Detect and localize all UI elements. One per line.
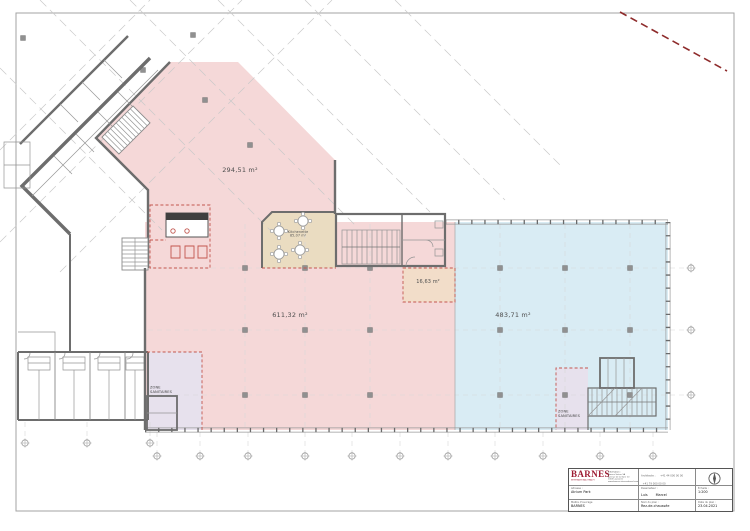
drawing-sheet: 294,51 m² 611,32 m² 483,71 m² 16,63 m² K… bbox=[0, 0, 750, 531]
area-label-small-room: 16,63 m² bbox=[401, 279, 455, 285]
north-arrow-icon bbox=[707, 471, 722, 486]
title-block-date-cell: Date du plan : 23.04.2021 bbox=[696, 500, 732, 511]
title-block-north-cell bbox=[696, 469, 732, 486]
sanitaires-left-line2: SANITAIRES bbox=[150, 390, 195, 394]
lower-left-wing bbox=[18, 352, 148, 420]
title-block-draftsman-cell: Dessinateur : Luis Marcel bbox=[639, 486, 696, 500]
kitchenette-area: 85,07 m² bbox=[271, 234, 325, 238]
draftsman-name1: Luis bbox=[641, 493, 648, 497]
wing-stair2-icon bbox=[122, 238, 148, 270]
owner-value: BARNES bbox=[571, 504, 636, 508]
title-block-owner-cell: Maître d'ouvrage BARNES bbox=[569, 500, 639, 511]
boundary-red-dashed-line bbox=[620, 12, 727, 71]
sanitaires-left-label: ZONE SANITAIRES bbox=[150, 386, 195, 394]
title-block-scale-cell: Échelle : 1:200 bbox=[696, 486, 732, 500]
title-block: BARNES INTERNATIONAL REALTY Information … bbox=[568, 468, 733, 512]
plan-name-value: Rez-de-chaussée bbox=[641, 504, 693, 508]
date-value: 23.04.2021 bbox=[698, 504, 730, 508]
title-block-logo-cell: BARNES INTERNATIONAL REALTY Information … bbox=[569, 469, 639, 486]
info-line: www.barnes-international.com bbox=[608, 480, 639, 482]
sanitaires-right-label: ZONE SANITAIRES bbox=[558, 410, 603, 418]
kitchenette-label: Kitchenette 85,07 m² bbox=[271, 230, 325, 237]
title-block-address-cell: Adresse : Atrium Park bbox=[569, 486, 639, 500]
architect-phone2: +41 79 000 00 00 bbox=[643, 482, 666, 485]
floor-plan bbox=[0, 0, 750, 531]
address-value: Atrium Park bbox=[571, 490, 636, 494]
zone-small-room bbox=[403, 268, 455, 302]
zone-upper-pink bbox=[96, 62, 335, 222]
zone-sanitaires-right bbox=[556, 368, 588, 430]
title-block-architect-cell: Architecte : +41 44 000 00 00 +41 79 000… bbox=[639, 469, 696, 486]
sanitaires-right-line2: SANITAIRES bbox=[558, 414, 603, 418]
architect-label: Architecte : bbox=[641, 474, 656, 477]
draftsman-name2: Marcel bbox=[656, 493, 667, 497]
architect-phone1: +41 44 000 00 00 bbox=[660, 474, 683, 477]
area-label-blue-zone: 483,71 m² bbox=[478, 311, 548, 319]
area-label-upper-zone: 294,51 m² bbox=[205, 166, 275, 174]
scale-value: 1:200 bbox=[698, 490, 730, 494]
area-label-main-zone: 611,32 m² bbox=[255, 311, 325, 319]
title-block-plan-name-cell: Nom du plan : Rez-de-chaussée bbox=[639, 500, 696, 511]
